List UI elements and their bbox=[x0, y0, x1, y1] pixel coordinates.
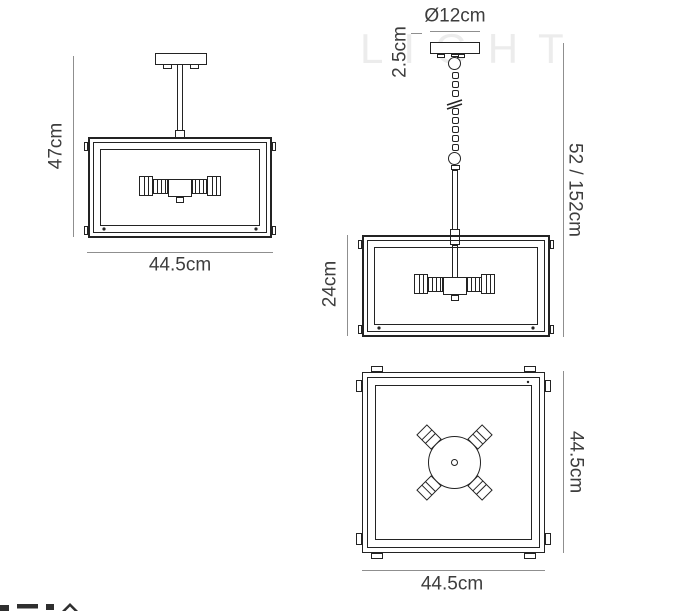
corner-tab bbox=[545, 533, 551, 545]
dimension-line-width bbox=[362, 570, 545, 571]
corner-tab bbox=[524, 366, 536, 372]
dimension-line-depth bbox=[563, 371, 564, 553]
corner-tab bbox=[545, 380, 551, 392]
dimension-label-depth: 44.5cm bbox=[567, 431, 586, 493]
corner-tab bbox=[524, 553, 536, 559]
view-top: 44.5cm 44.5cm bbox=[0, 0, 688, 611]
center-hole bbox=[451, 459, 458, 466]
dimension-label-width: 44.5cm bbox=[421, 575, 483, 594]
corner-tab bbox=[371, 366, 383, 372]
product-dimension-diagram: LIGHT 47c bbox=[0, 0, 688, 611]
corner-tab bbox=[356, 533, 362, 545]
corner-tab bbox=[356, 380, 362, 392]
corner-tab bbox=[371, 553, 383, 559]
